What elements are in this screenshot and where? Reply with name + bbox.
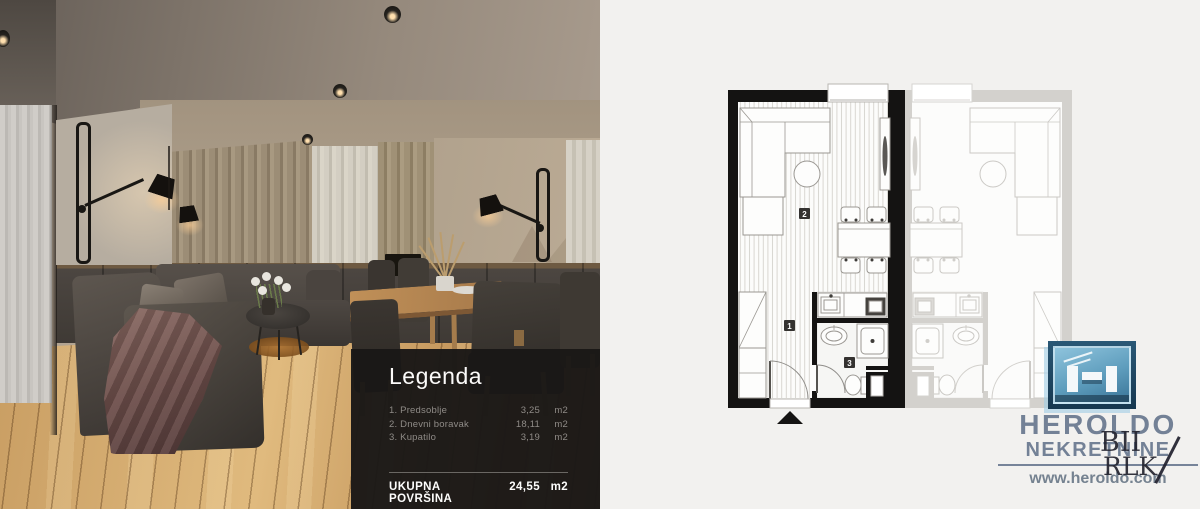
legend-rows: 1. Predsoblje 3,25 m2 2. Dnevni boravak … (389, 404, 568, 445)
bathroom-wall (983, 292, 988, 365)
total-label: UKUPNA POVRŠINA (389, 481, 494, 505)
toilet (939, 375, 955, 395)
ceiling-spotlight-icon (333, 84, 347, 98)
room-unit: m2 (540, 431, 568, 445)
wc-nook-wall (912, 366, 934, 370)
wc-nook-wall (866, 366, 888, 370)
legend-title: Legenda (389, 363, 568, 390)
entrance-threshold (990, 399, 1030, 408)
tv (913, 136, 918, 176)
svg-text:3: 3 (847, 359, 852, 368)
room-area: 3,19 (494, 431, 540, 445)
heroldo-logo-icon (1048, 341, 1136, 409)
bathroom-wall (812, 292, 817, 365)
legend-row: 3. Kupatilo 3,19 m2 (389, 431, 568, 445)
flower (251, 277, 260, 286)
wall-lamp-rail-icon (76, 122, 91, 264)
room-area: 18,11 (494, 418, 540, 432)
ottoman (743, 197, 783, 235)
wall (895, 398, 990, 408)
room-label-bath: 3 (844, 357, 855, 368)
entrance-threshold (770, 399, 810, 408)
room-label-living: 2 (799, 208, 810, 219)
dining-table (838, 223, 890, 257)
window (912, 84, 972, 102)
svg-text:1: 1 (787, 322, 792, 331)
wall-corner-shadow (50, 105, 57, 435)
room-unit: m2 (540, 404, 568, 418)
brand-name: HEROLDO (998, 411, 1198, 439)
wall (810, 398, 905, 408)
watermark-text: RLK (1103, 454, 1157, 480)
ceiling-spotlight-icon (302, 134, 313, 145)
floorplan-unit-neighbour: 1 2 3 (895, 84, 1072, 408)
bathroom-wall (812, 318, 888, 323)
legend-row: 1. Predsoblje 3,25 m2 (389, 404, 568, 418)
wall (728, 398, 770, 408)
lamp-cord-icon (168, 146, 170, 210)
wall (728, 90, 828, 102)
flower (258, 286, 267, 295)
wall (972, 90, 1072, 102)
party-wall (888, 90, 905, 408)
chair-wood-frame (514, 330, 524, 346)
entrance-arrow-icon (777, 411, 803, 424)
legend-panel: Legenda 1. Predsoblje 3,25 m2 2. Dnevni … (351, 349, 600, 509)
total-unit: m2 (540, 481, 568, 505)
coffee-table (980, 161, 1006, 187)
flower (282, 283, 291, 292)
legend-divider (389, 472, 568, 473)
legend-total-row: UKUPNA POVRŠINA 24,55 m2 (389, 481, 568, 505)
listing-composite: Legenda 1. Predsoblje 3,25 m2 2. Dnevni … (0, 0, 1200, 509)
room-name: 3. Kupatilo (389, 431, 494, 445)
room-area: 3,25 (494, 404, 540, 418)
building-h-icon (1053, 346, 1131, 404)
tv (883, 136, 888, 176)
dining-table (910, 223, 962, 257)
room-name: 2. Dnevni boravak (389, 418, 494, 432)
toilet (845, 375, 861, 395)
floorplan-panel: 1 2 3 (600, 0, 1200, 509)
interior-render-photo: Legenda 1. Predsoblje 3,25 m2 2. Dnevni … (0, 0, 600, 509)
room-unit: m2 (540, 418, 568, 432)
wall-lamp-rail-icon (536, 168, 550, 262)
svg-text:2: 2 (802, 210, 807, 219)
window (828, 84, 888, 102)
wall (728, 90, 738, 408)
brand-rule (998, 464, 1198, 466)
room-label-hall: 1 (784, 320, 795, 331)
total-area: 24,55 (494, 481, 540, 505)
coffee-table (794, 161, 820, 187)
flower (262, 272, 271, 281)
bathroom-wall (912, 318, 988, 323)
coffee-table-leg (278, 330, 280, 360)
lamp-joint-icon (536, 224, 544, 232)
vase (262, 298, 275, 315)
brand-website: www.heroldo.com (998, 470, 1198, 488)
curtain-far-left (0, 105, 52, 403)
left-ceiling-corner (0, 0, 56, 120)
ottoman (1017, 197, 1057, 235)
flower (274, 276, 283, 285)
legend-row: 2. Dnevni boravak 18,11 m2 (389, 418, 568, 432)
room-name: 1. Predsoblje (389, 404, 494, 418)
brand-block: HEROLDO NEKRETNINE www.heroldo.com (998, 411, 1198, 488)
ceiling-spotlight-icon (384, 6, 401, 23)
floorplan-unit: 1 2 3 (728, 84, 905, 424)
